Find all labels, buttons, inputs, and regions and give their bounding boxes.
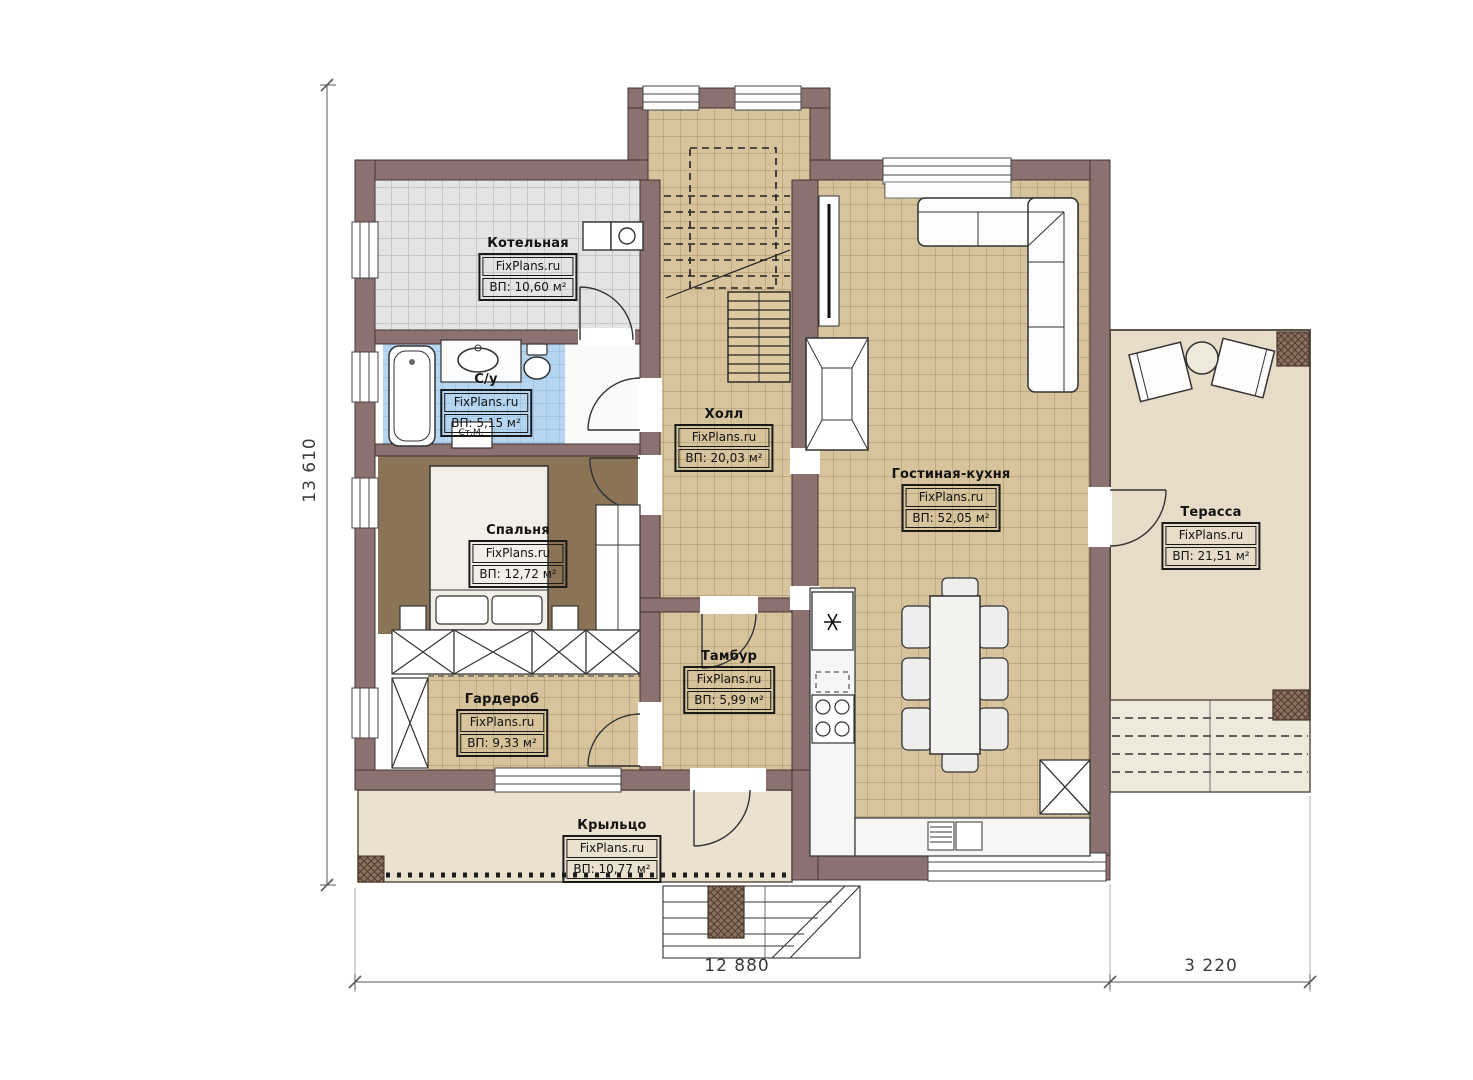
watermark: FixPlans.ru [678,428,769,447]
tv-panel [819,196,839,326]
watermark: FixPlans.ru [460,713,544,732]
room-info-box: FixPlans.ru ВП: 10,60 м² [478,253,577,301]
dimension-width-terrace: 3 220 [1184,956,1238,976]
room-label-kryltso: Крыльцо FixPlans.ru ВП: 10,77 м² [562,818,661,883]
nightstand [400,606,426,632]
fireplace [806,338,868,450]
room-label-gostinaya: Гостиная-кухня FixPlans.ru ВП: 52,05 м² [892,467,1011,532]
room-name: С/у [440,372,532,387]
room-name: Холл [674,407,773,422]
room-area: ВП: 10,77 м² [566,860,657,879]
room-label-su: С/у FixPlans.ru ВП: 5,15 м² [440,372,532,437]
room-area: ВП: 5,15 м² [444,414,528,433]
room-label-tambur: Тамбур FixPlans.ru ВП: 5,99 м² [683,649,775,714]
terrace-column [1277,332,1309,366]
room-info-box: FixPlans.ru ВП: 21,51 м² [1161,522,1260,570]
watermark: FixPlans.ru [482,257,573,276]
room-label-holl: Холл FixPlans.ru ВП: 20,03 м² [674,407,773,472]
room-name: Гостиная-кухня [892,467,1011,482]
room-info-box: FixPlans.ru ВП: 12,72 м² [468,540,567,588]
watermark: FixPlans.ru [566,839,657,858]
room-area: ВП: 52,05 м² [905,509,996,528]
watermark: FixPlans.ru [472,544,563,563]
room-name: Спальня [468,523,567,538]
bathtub [389,346,435,446]
room-name: Тамбур [683,649,775,664]
room-area: ВП: 21,51 м² [1165,547,1256,566]
room-name: Терасса [1161,505,1260,520]
room-area: ВП: 5,99 м² [687,691,771,710]
entrance-column [708,886,744,938]
room-info-box: FixPlans.ru ВП: 52,05 м² [901,484,1000,532]
room-area: ВП: 12,72 м² [472,565,563,584]
stove [812,695,854,743]
room-info-box: FixPlans.ru ВП: 5,15 м² [440,389,532,437]
room-area: ВП: 10,60 м² [482,278,573,297]
boiler-unit [583,222,643,250]
nightstand [552,606,578,632]
room-area: ВП: 9,33 м² [460,734,544,753]
room-info-box: FixPlans.ru ВП: 20,03 м² [674,424,773,472]
dimension-width-main: 12 880 [704,956,769,976]
corner-cabinet [1040,760,1090,814]
watermark: FixPlans.ru [905,488,996,507]
floor-plan-page: Котельная FixPlans.ru ВП: 10,60 м² С/у F… [0,0,1473,1080]
room-name: Котельная [478,236,577,251]
watermark: FixPlans.ru [444,393,528,412]
porch-column [358,856,384,882]
dimension-height-total: 13 610 [300,437,320,502]
room-info-box: FixPlans.ru ВП: 9,33 м² [456,709,548,757]
room-info-box: FixPlans.ru ВП: 10,77 м² [562,835,661,883]
room-name: Гардероб [456,692,548,707]
bedroom-closet [596,505,640,630]
watermark: FixPlans.ru [1165,526,1256,545]
room-info-box: FixPlans.ru ВП: 5,99 м² [683,666,775,714]
dining-table [902,578,1008,772]
terrace-column [1273,690,1309,720]
room-name: Крыльцо [562,818,661,833]
terrace-table [1186,342,1218,374]
room-area: ВП: 20,03 м² [678,449,769,468]
room-label-garderob: Гардероб FixPlans.ru ВП: 9,33 м² [456,692,548,757]
window-bench [885,182,1011,198]
entrance-steps [663,886,860,958]
room-label-kotelnaya: Котельная FixPlans.ru ВП: 10,60 м² [478,236,577,301]
room-label-spalnya: Спальня FixPlans.ru ВП: 12,72 м² [468,523,567,588]
watermark: FixPlans.ru [687,670,771,689]
room-label-terassa: Терасса FixPlans.ru ВП: 21,51 м² [1161,505,1260,570]
bathroom-entry [565,343,640,447]
